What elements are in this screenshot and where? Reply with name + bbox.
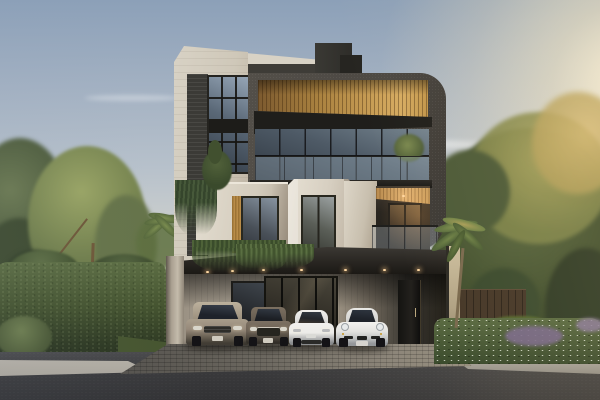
- downlight: [300, 269, 303, 271]
- cloud: [85, 95, 180, 101]
- purple-flowers: [576, 318, 600, 332]
- palm-trunk: [455, 248, 465, 328]
- license-plate: [356, 341, 368, 346]
- headlight: [322, 329, 330, 332]
- scene: [0, 0, 600, 400]
- car-white-sedan: [289, 310, 334, 348]
- car-white-sports-car: [336, 308, 388, 349]
- downlight: [344, 269, 347, 271]
- entry-door: [398, 280, 421, 346]
- car-intake: [301, 340, 322, 344]
- car-wheel: [234, 336, 243, 346]
- balcony-conifer: [208, 140, 222, 164]
- headlight-round: [376, 323, 384, 331]
- car-wheel: [249, 337, 257, 346]
- car-wheel: [322, 338, 330, 347]
- license-plate: [263, 338, 273, 343]
- car-wheel: [376, 338, 385, 347]
- car-grille: [204, 326, 231, 333]
- headlight: [250, 327, 257, 331]
- car-bronze-suv: [246, 307, 291, 348]
- stone-chamfer: [288, 179, 298, 253]
- car-wheel: [339, 338, 348, 347]
- hanging-vines: [236, 244, 314, 270]
- car-grille: [257, 327, 280, 336]
- floor3-glass-wall: [255, 129, 429, 184]
- car-champagne-suv: [186, 302, 249, 348]
- tower-spandrel: [209, 119, 251, 133]
- car-wheel: [293, 338, 301, 347]
- headlight: [293, 329, 301, 332]
- car-intake: [357, 336, 367, 340]
- palm-right: [434, 206, 494, 326]
- purple-flowers: [505, 326, 563, 346]
- headlight: [280, 327, 287, 331]
- headlight-round: [341, 323, 349, 331]
- downlight: [383, 269, 386, 271]
- headlight: [233, 326, 242, 330]
- license-plate: [306, 334, 316, 338]
- fog-light-accent: [342, 333, 344, 335]
- door-handle: [415, 308, 416, 317]
- downlight: [206, 271, 209, 273]
- headlight: [193, 326, 202, 330]
- downlight: [417, 269, 420, 271]
- fog-light-accent: [380, 333, 382, 335]
- carport-pillar: [166, 256, 184, 348]
- car-wheel: [192, 336, 201, 346]
- wood-soffit: [258, 80, 428, 117]
- car-windshield: [195, 305, 240, 319]
- license-plate: [212, 336, 223, 341]
